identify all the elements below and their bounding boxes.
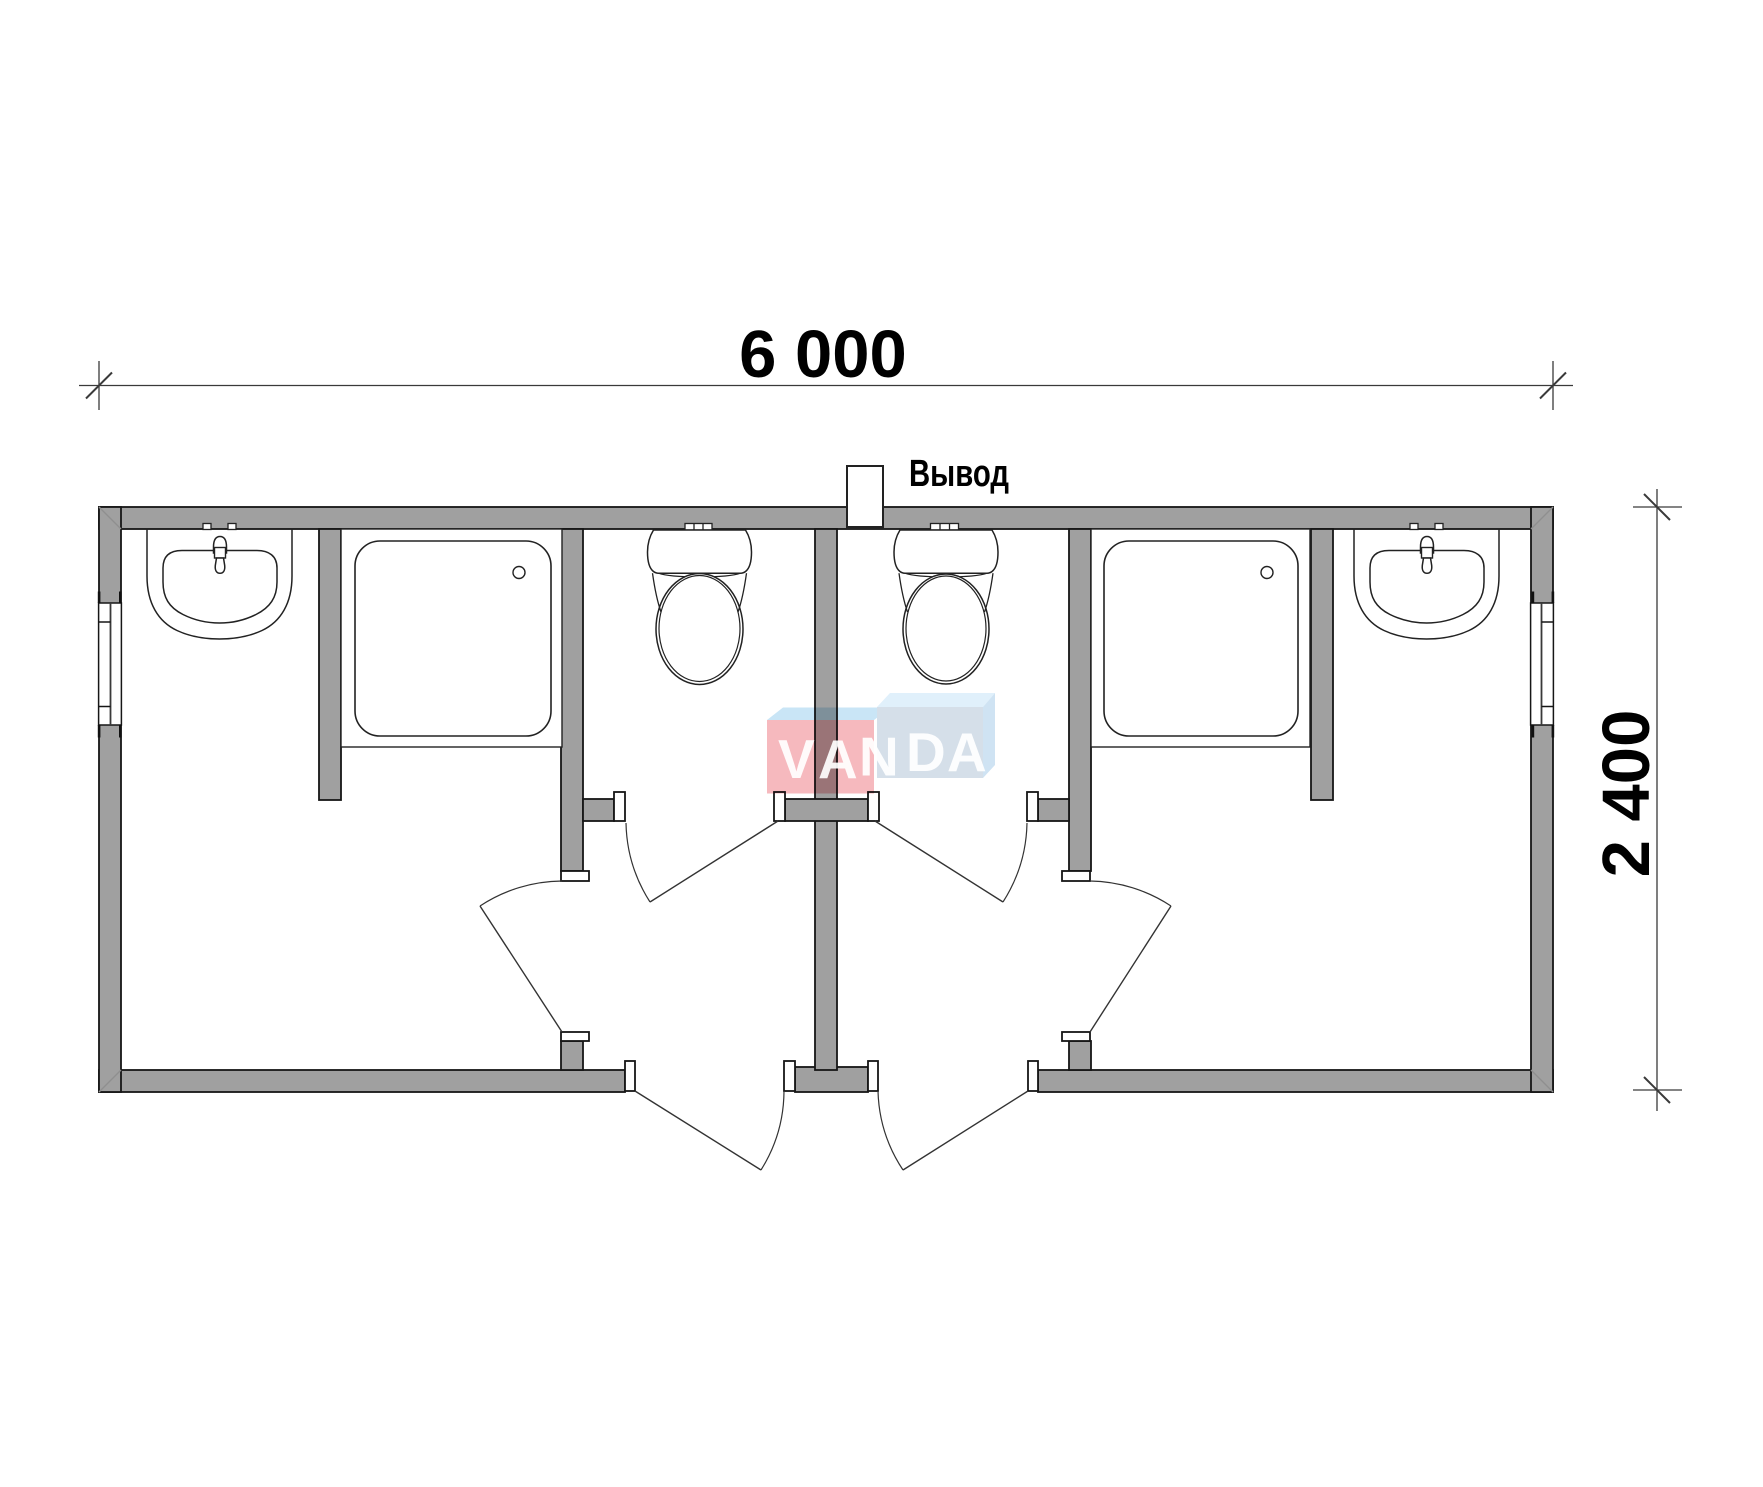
svg-text:A: A xyxy=(818,728,858,790)
svg-text:V: V xyxy=(778,728,815,790)
svg-text:Вывод: Вывод xyxy=(909,453,1009,495)
svg-text:6 000: 6 000 xyxy=(739,317,907,392)
svg-text:A: A xyxy=(947,721,987,783)
svg-text:D: D xyxy=(906,721,946,783)
svg-text:2 400: 2 400 xyxy=(1589,710,1664,878)
svg-text:N: N xyxy=(859,726,899,788)
